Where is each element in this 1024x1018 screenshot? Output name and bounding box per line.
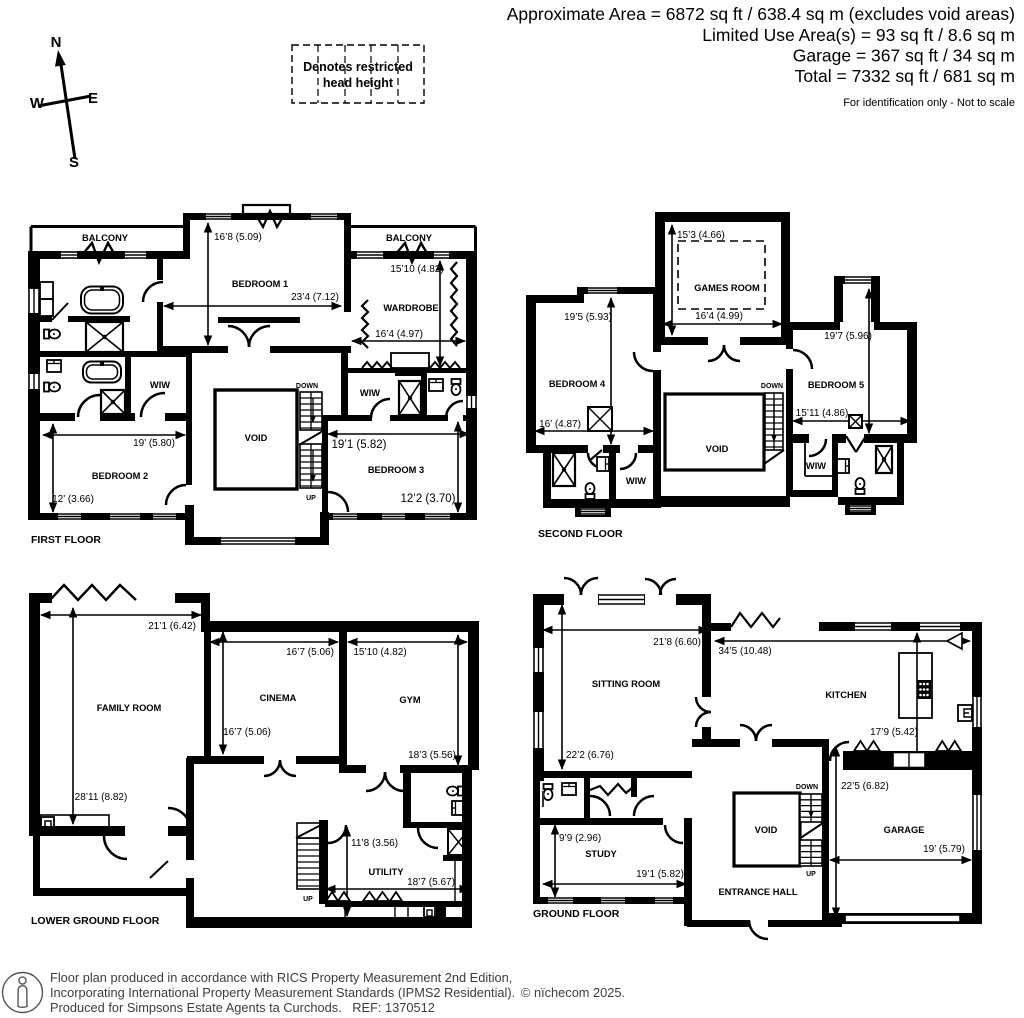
svg-text:VOID: VOID xyxy=(245,433,268,443)
svg-text:BEDROOM 5: BEDROOM 5 xyxy=(808,380,864,390)
svg-text:CINEMA: CINEMA xyxy=(260,693,297,703)
svg-text:UP: UP xyxy=(806,871,816,878)
svg-text:SECOND FLOOR: SECOND FLOOR xyxy=(538,528,623,540)
svg-text:BEDROOM 3: BEDROOM 3 xyxy=(368,465,424,475)
svg-text:BALCONY: BALCONY xyxy=(386,233,433,243)
svg-text:N: N xyxy=(51,34,62,51)
svg-text:19’5 (5.93): 19’5 (5.93) xyxy=(564,312,612,323)
svg-text:UP: UP xyxy=(306,495,316,502)
svg-text:FIRST FLOOR: FIRST FLOOR xyxy=(31,534,101,546)
svg-text:BALCONY: BALCONY xyxy=(82,233,129,243)
svg-text:21’1 (6.42): 21’1 (6.42) xyxy=(148,621,196,632)
svg-text:12’ (3.66): 12’ (3.66) xyxy=(52,494,94,505)
svg-text:WIW: WIW xyxy=(360,388,380,398)
svg-text:Denotes restricted: Denotes restricted xyxy=(303,60,413,74)
svg-text:16’4 (4.99): 16’4 (4.99) xyxy=(695,311,743,322)
svg-text:9’9 (2.96): 9’9 (2.96) xyxy=(559,833,601,844)
svg-text:Approximate Area = 6872 sq ft: Approximate Area = 6872 sq ft / 638.4 sq… xyxy=(507,4,1015,24)
svg-text:15’10 (4.82): 15’10 (4.82) xyxy=(353,647,406,658)
svg-text:© nïchecom 2025.: © nïchecom 2025. xyxy=(521,985,625,1000)
svg-text:DOWN: DOWN xyxy=(796,784,818,791)
svg-text:19’1 (5.82): 19’1 (5.82) xyxy=(636,869,684,880)
svg-text:19’1 (5.82): 19’1 (5.82) xyxy=(332,439,387,451)
svg-text:Floor plan produced in accorda: Floor plan produced in accordance with R… xyxy=(50,970,512,985)
svg-text:17’9 (5.42): 17’9 (5.42) xyxy=(870,727,918,738)
svg-text:34’5 (10.48): 34’5 (10.48) xyxy=(718,646,771,657)
svg-text:W: W xyxy=(30,95,45,112)
svg-text:Limited Use Area(s) = 93 sq ft: Limited Use Area(s) = 93 sq ft / 8.6 sq … xyxy=(702,25,1015,45)
svg-text:SITTING ROOM: SITTING ROOM xyxy=(592,679,660,689)
svg-text:22’2 (6.76): 22’2 (6.76) xyxy=(566,750,614,761)
svg-text:GROUND FLOOR: GROUND FLOOR xyxy=(533,908,620,920)
svg-text:FAMILY ROOM: FAMILY ROOM xyxy=(97,703,162,713)
svg-text:19’ (5.79): 19’ (5.79) xyxy=(923,844,965,855)
svg-text:16’7 (5.06): 16’7 (5.06) xyxy=(223,727,271,738)
svg-text:16’ (4.87): 16’ (4.87) xyxy=(539,419,581,430)
svg-text:18’7 (5.67): 18’7 (5.67) xyxy=(407,877,455,888)
svg-text:BEDROOM 1: BEDROOM 1 xyxy=(232,279,288,289)
svg-text:11’8 (3.56): 11’8 (3.56) xyxy=(351,838,398,849)
svg-text:WARDROBE: WARDROBE xyxy=(383,303,438,313)
svg-text:VOID: VOID xyxy=(706,444,729,454)
svg-text:VOID: VOID xyxy=(755,825,778,835)
svg-text:E: E xyxy=(88,90,98,107)
svg-text:23’4 (7.12): 23’4 (7.12) xyxy=(291,292,339,303)
svg-text:15’3 (4.66): 15’3 (4.66) xyxy=(677,230,725,241)
svg-text:GAMES ROOM: GAMES ROOM xyxy=(694,283,760,293)
svg-text:ENTRANCE HALL: ENTRANCE HALL xyxy=(718,887,797,897)
svg-text:22’5 (6.82): 22’5 (6.82) xyxy=(841,781,889,792)
svg-text:GYM: GYM xyxy=(399,695,420,705)
svg-text:WIW: WIW xyxy=(626,476,646,486)
svg-text:Garage = 367 sq ft / 34 sq m: Garage = 367 sq ft / 34 sq m xyxy=(793,46,1015,66)
svg-text:16’7 (5.06): 16’7 (5.06) xyxy=(286,647,334,658)
svg-text:UP: UP xyxy=(303,896,313,903)
svg-text:WIW: WIW xyxy=(806,461,826,471)
svg-text:12’2 (3.70): 12’2 (3.70) xyxy=(401,493,456,505)
svg-text:15’10 (4.82): 15’10 (4.82) xyxy=(390,264,443,275)
svg-text:For identification only - Not: For identification only - Not to scale xyxy=(843,97,1015,109)
svg-text:15’11 (4.86): 15’11 (4.86) xyxy=(796,408,849,419)
svg-text:UTILITY: UTILITY xyxy=(368,867,404,877)
svg-text:28’11 (8.82): 28’11 (8.82) xyxy=(75,792,128,803)
svg-text:DOWN: DOWN xyxy=(761,383,783,390)
svg-text:BEDROOM 2: BEDROOM 2 xyxy=(92,471,148,481)
svg-text:19’ (5.80): 19’ (5.80) xyxy=(133,438,175,449)
svg-text:Produced for Simpsons Estate A: Produced for Simpsons Estate Agents ta C… xyxy=(50,1000,435,1015)
svg-text:19’7 (5.96): 19’7 (5.96) xyxy=(824,331,872,342)
svg-text:S: S xyxy=(69,154,79,171)
svg-text:WIW: WIW xyxy=(150,380,170,390)
svg-text:Total = 7332 sq ft / 681 sq m: Total = 7332 sq ft / 681 sq m xyxy=(795,66,1015,86)
svg-text:STUDY: STUDY xyxy=(585,849,617,859)
svg-text:16’4 (4.97): 16’4 (4.97) xyxy=(375,329,423,340)
svg-text:21’8 (6.60): 21’8 (6.60) xyxy=(653,637,701,648)
svg-text:head height: head height xyxy=(323,76,394,90)
svg-text:KITCHEN: KITCHEN xyxy=(825,690,867,700)
svg-text:GARAGE: GARAGE xyxy=(884,825,925,835)
svg-text:LOWER GROUND FLOOR: LOWER GROUND FLOOR xyxy=(31,915,160,927)
svg-text:BEDROOM 4: BEDROOM 4 xyxy=(549,379,606,389)
svg-text:DOWN: DOWN xyxy=(296,383,318,390)
svg-text:Incorporating International Pr: Incorporating International Property Mea… xyxy=(50,985,515,1000)
svg-text:16’8 (5.09): 16’8 (5.09) xyxy=(214,232,262,243)
svg-text:18’3 (5.56): 18’3 (5.56) xyxy=(408,750,456,761)
